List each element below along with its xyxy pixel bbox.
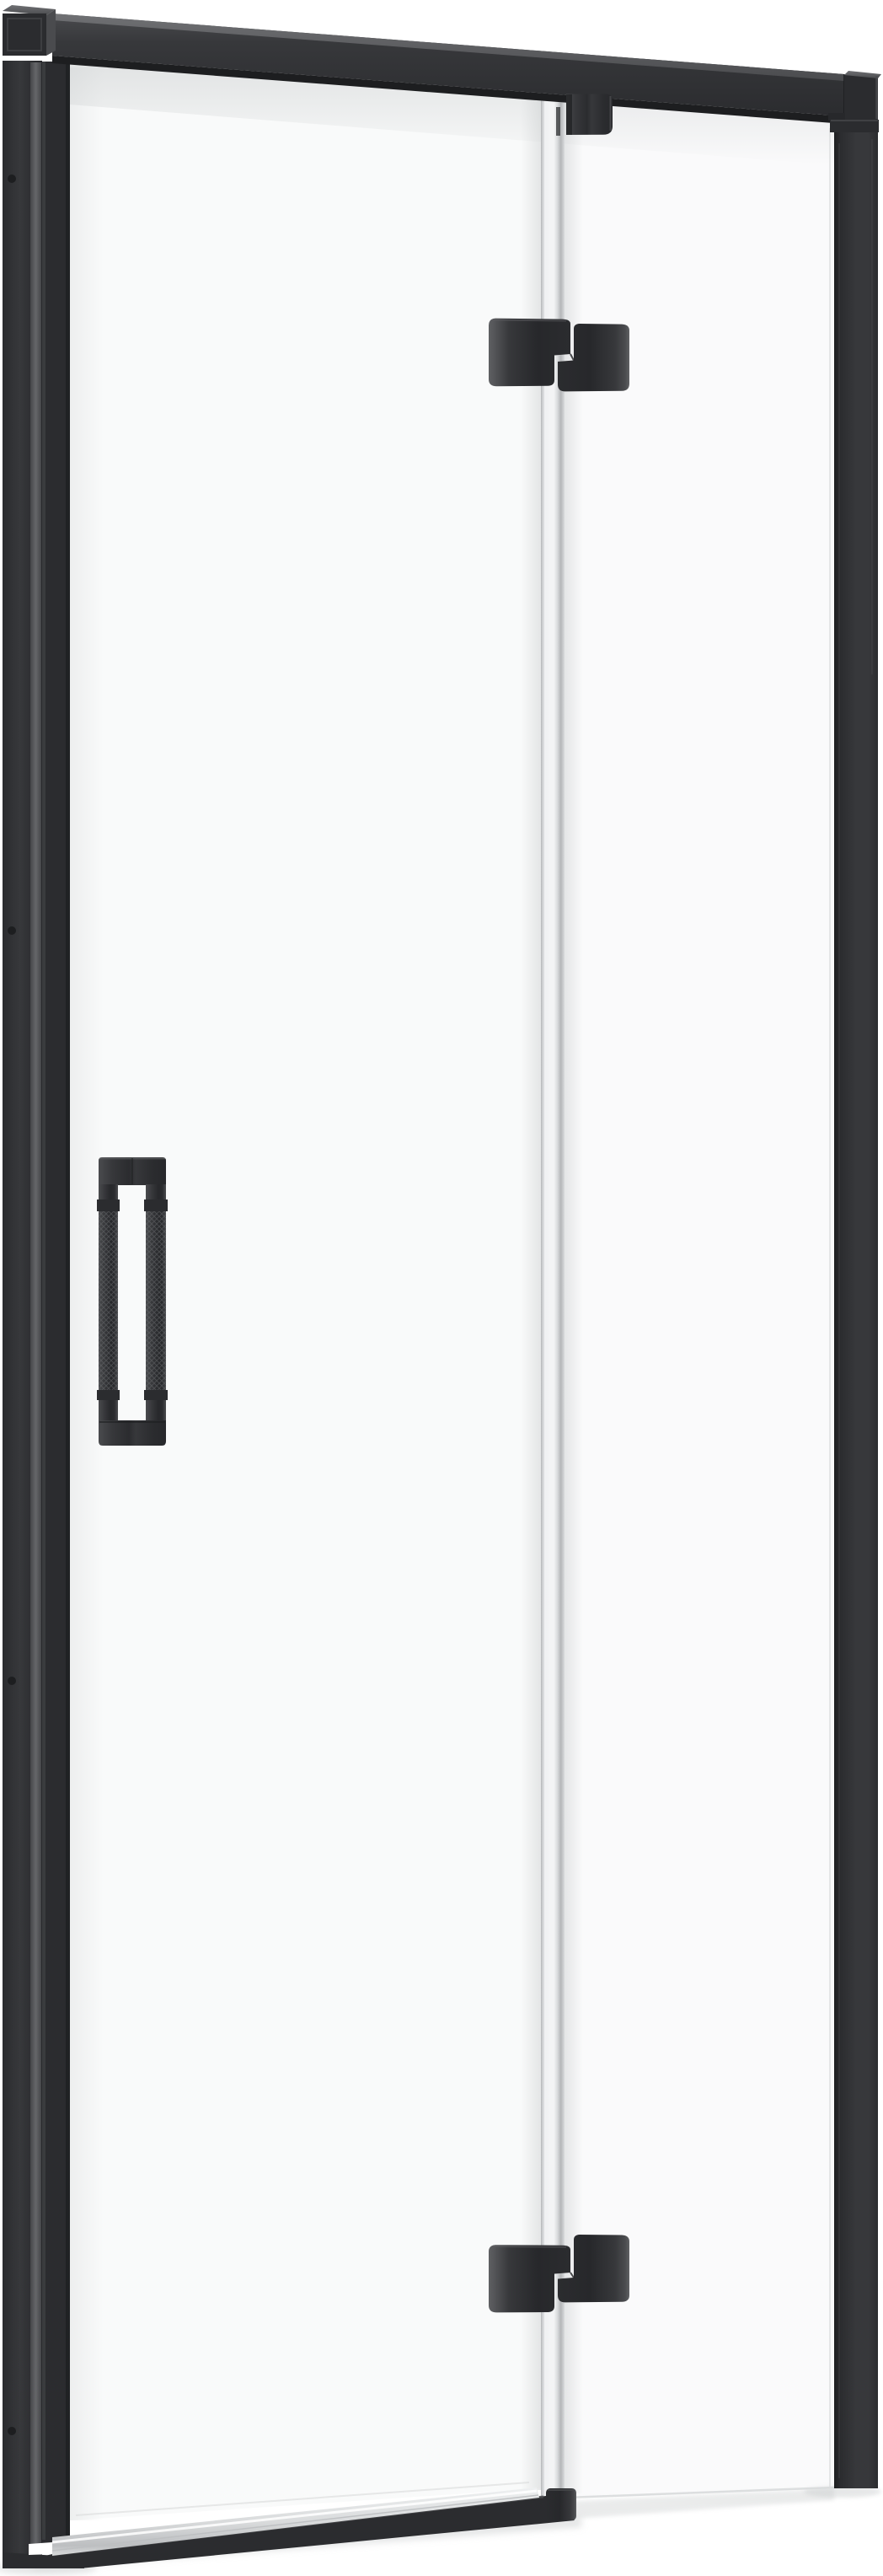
wall-cap-front-face bbox=[3, 13, 46, 56]
door-glass bbox=[70, 63, 541, 2520]
fixed-panel-glass bbox=[565, 101, 834, 2498]
glass-edge-glow-left bbox=[521, 99, 541, 2490]
rail-end-cap bbox=[546, 2488, 576, 2520]
hinge-upper bbox=[489, 319, 629, 392]
screw-hole bbox=[8, 926, 16, 935]
handle-knurl-front bbox=[99, 1211, 118, 1391]
door-profile-highlight bbox=[42, 62, 45, 2540]
end-cap-bracket bbox=[828, 113, 845, 121]
handle-collar bbox=[97, 1199, 120, 1211]
wall-cap-right-face bbox=[46, 9, 56, 56]
glass-clamp-top bbox=[566, 94, 613, 136]
handle-collar bbox=[144, 1390, 168, 1400]
glass-edge-gasket bbox=[556, 107, 560, 136]
clamp-left-shade bbox=[566, 94, 572, 135]
wall-profile-reflection bbox=[30, 62, 41, 2559]
screw-hole bbox=[8, 1677, 16, 1685]
glass-panels bbox=[70, 63, 834, 2520]
handle-collar bbox=[97, 1390, 120, 1400]
right-wall-post bbox=[830, 120, 879, 2488]
product-image bbox=[0, 0, 883, 2576]
glass-edge-glow-right bbox=[565, 101, 583, 2493]
door-leaf-profile bbox=[42, 62, 70, 2543]
hinge-top-highlight bbox=[492, 320, 566, 321]
glass-edge bbox=[541, 99, 565, 2498]
screw-hole bbox=[8, 174, 16, 183]
door-profile-edge-line bbox=[66, 62, 70, 2541]
end-cap-front-face bbox=[844, 75, 878, 120]
shower-door-render bbox=[0, 0, 883, 2576]
clamp-body bbox=[566, 94, 613, 136]
hinge-top-highlight bbox=[492, 2246, 566, 2247]
handle-collar bbox=[144, 1199, 168, 1211]
screw-hole bbox=[8, 2427, 16, 2435]
rail-corner-notch bbox=[29, 2542, 52, 2555]
glass-edge-highlight bbox=[544, 99, 554, 2498]
post-collar bbox=[830, 120, 879, 132]
handle-knurl-back bbox=[146, 1211, 166, 1391]
wall-mount-cap bbox=[3, 5, 56, 56]
handle-bottom-cap bbox=[99, 1420, 166, 1446]
